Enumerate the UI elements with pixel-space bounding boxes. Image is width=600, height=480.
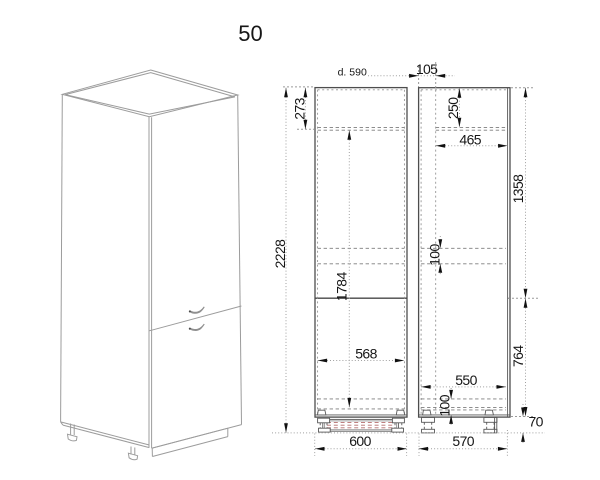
svg-text:50: 50 [238,21,262,46]
svg-text:550: 550 [455,372,477,388]
svg-text:1784: 1784 [333,272,349,302]
svg-text:568: 568 [355,345,377,361]
svg-text:1358: 1358 [510,174,526,204]
svg-text:600: 600 [349,433,371,449]
svg-text:100: 100 [437,394,453,416]
svg-text:465: 465 [459,131,481,147]
svg-text:273: 273 [291,97,307,119]
svg-text:70: 70 [529,414,544,430]
svg-text:100: 100 [427,244,443,266]
svg-text:105: 105 [416,61,438,77]
svg-text:d. 590: d. 590 [338,67,367,79]
svg-text:764: 764 [510,345,526,367]
svg-text:250: 250 [445,97,461,119]
svg-text:570: 570 [452,433,474,449]
svg-text:2228: 2228 [272,239,288,269]
